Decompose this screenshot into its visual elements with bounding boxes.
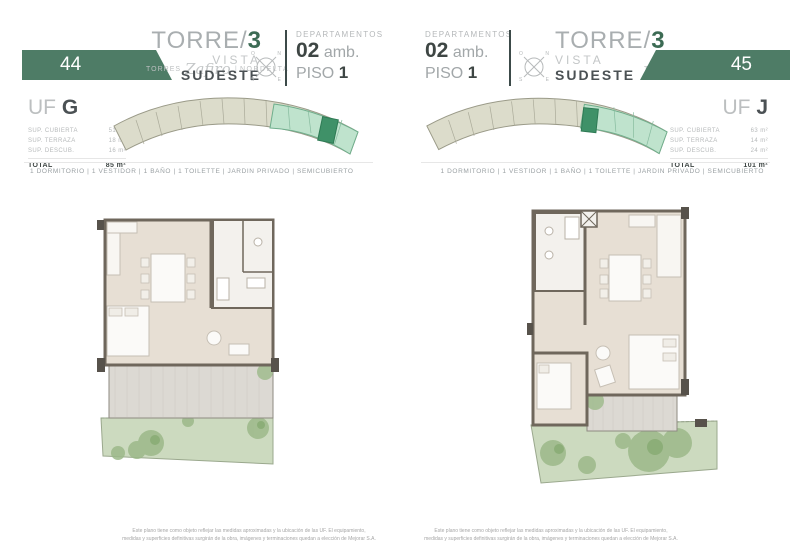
unit-prefix: UF (28, 96, 56, 119)
compass-east: E (546, 77, 549, 83)
compass-west: O (519, 51, 523, 57)
compass-icon: O N S E (519, 52, 549, 82)
amenities-divider (24, 162, 373, 163)
compass-north: N (545, 51, 549, 57)
amenities-list: 1 DORMITORIO | 1 VESTIDOR | 1 BAÑO | 1 T… (441, 168, 764, 175)
compass-south: S (519, 77, 522, 83)
disclaimer-text: Este plano tiene como objeto reflejar la… (405, 527, 697, 543)
tower-title: TORRE/3 VISTA SUDESTE (151, 28, 261, 82)
surface-label: SUP. TERRAZA (670, 138, 718, 144)
surface-label: SUP. CUBIERTA (28, 128, 78, 134)
amb-label: amb. (453, 44, 489, 61)
piso-label: PISO (425, 65, 463, 82)
tower-label: TORRE/ (555, 27, 651, 54)
disclaimer-line-2: medidas y superficies definitivas surgir… (103, 535, 395, 543)
surface-label: SUP. DESCUB. (670, 148, 716, 154)
compass-south: S (251, 77, 254, 83)
building-keyplan (106, 88, 362, 162)
page-number: 45 (731, 54, 752, 76)
departamentos-block: DEPARTAMENTOS 02 amb. PISO 1 (425, 30, 512, 84)
disclaimer-line-1: Este plano tiene como objeto reflejar la… (103, 527, 395, 535)
tower-number: 3 (651, 27, 664, 54)
compass-icon: O N S E (251, 52, 281, 82)
surface-value: 14 m² (751, 138, 768, 144)
amb-count: 02 (296, 39, 319, 62)
departamentos-label: DEPARTAMENTOS (296, 30, 383, 39)
surface-row: SUP. DESCUB. 24 m² (670, 148, 768, 154)
disclaimer-text: Este plano tiene como objeto reflejar la… (103, 527, 395, 543)
unit-letter: J (756, 96, 768, 119)
brochure-sheet: 44 Torres Zafiro | NORDELTA TORRE/3 VIST… (0, 0, 794, 559)
building-keyplan (419, 88, 671, 162)
surface-row: SUP. TERRAZA 14 m² (670, 138, 768, 144)
surface-label: SUP. DESCUB. (28, 148, 74, 154)
amenities-divider (421, 162, 770, 163)
compass-north: N (277, 51, 281, 57)
page-number: 44 (60, 54, 81, 76)
surface-value: 24 m² (751, 148, 768, 154)
vista-label: VISTA (151, 54, 261, 67)
page-number-badge: 45 (640, 50, 790, 80)
surface-label: SUP. CUBIERTA (670, 128, 720, 134)
piso-label: PISO (296, 65, 334, 82)
amenities-list: 1 DORMITORIO | 1 VESTIDOR | 1 BAÑO | 1 T… (30, 168, 353, 175)
tower-label: TORRE/ (151, 27, 247, 54)
disclaimer-line-2: medidas y superficies definitivas surgir… (405, 535, 697, 543)
surface-row: SUP. CUBIERTA 63 m² (670, 128, 768, 134)
compass-west: O (251, 51, 255, 57)
departamentos-block: DEPARTAMENTOS 02 amb. PISO 1 (296, 30, 383, 84)
page-44: 44 Torres Zafiro | NORDELTA TORRE/3 VIST… (0, 0, 397, 559)
page-45: DEPARTAMENTOS 02 amb. PISO 1 O N S E (397, 0, 794, 559)
compass-east: E (278, 77, 281, 83)
vista-direction: SUDESTE (151, 68, 261, 83)
amb-count: 02 (425, 39, 448, 62)
unit-letter: G (62, 96, 78, 119)
surface-value: 63 m² (751, 128, 768, 134)
unit-prefix: UF (722, 96, 750, 119)
floor-plan-uf-j (525, 203, 725, 495)
surface-label: SUP. TERRAZA (28, 138, 76, 144)
amb-label: amb. (324, 44, 360, 61)
header-divider (509, 30, 511, 86)
tower-number: 3 (248, 27, 261, 54)
header-divider (285, 30, 287, 86)
piso-number: 1 (468, 63, 477, 82)
floor-plan-uf-g (93, 212, 283, 472)
departamentos-label: DEPARTAMENTOS (425, 30, 512, 39)
disclaimer-line-1: Este plano tiene como objeto reflejar la… (405, 527, 697, 535)
piso-number: 1 (339, 63, 348, 82)
